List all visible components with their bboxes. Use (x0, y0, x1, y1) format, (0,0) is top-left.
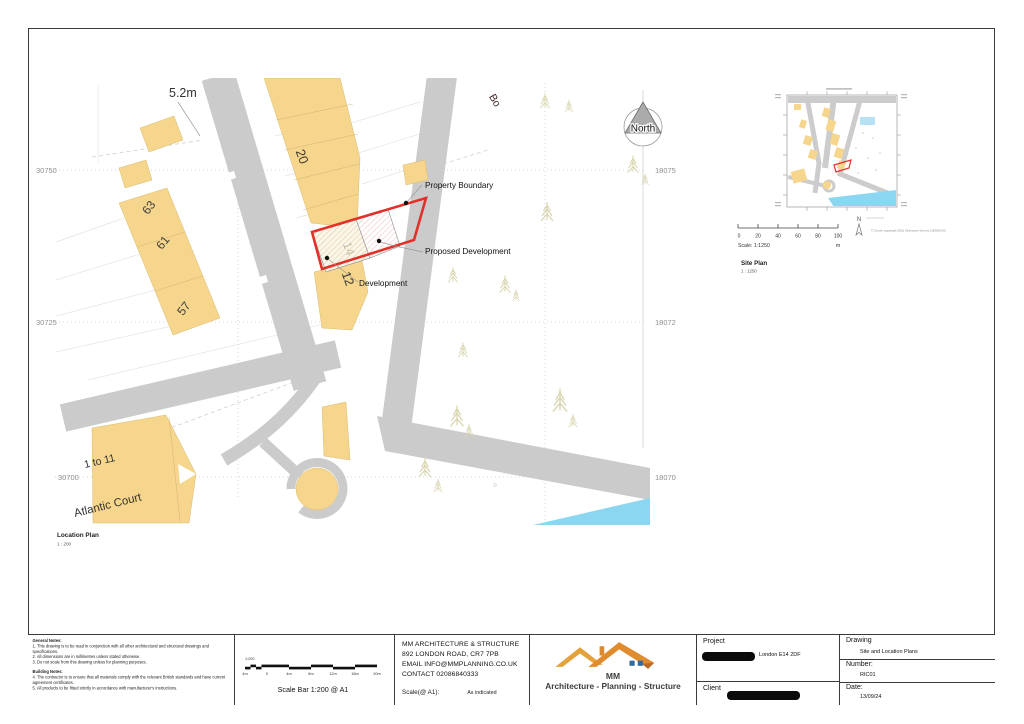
scale-bar-graphic: 1:200 4m 0 4m 8m (235, 635, 395, 706)
dimension-label: 5.2m (169, 86, 197, 100)
development-label: Development (359, 279, 408, 288)
svg-text:30700: 30700 (58, 473, 79, 482)
site-plan-scale-caption: 1 : 1250 (741, 269, 757, 274)
number-value: RIC01 (860, 672, 876, 678)
drawing-sheet: 5.2m 20 63 61 57 14 12 1 to 11 Atlantic … (0, 0, 1024, 724)
svg-text:N: N (857, 217, 861, 223)
client-name-redacted (727, 691, 800, 700)
firm-cell: MM ARCHITECTURE & STRUCTURE 892 LONDON R… (395, 635, 530, 705)
firm-email: EMAIL INFO@MMPLANNING.CO.UK (402, 660, 529, 670)
svg-text:20: 20 (755, 234, 761, 240)
svg-text:20m: 20m (373, 671, 381, 676)
svg-text:12m: 12m (329, 671, 337, 676)
scale-bar-caption: Scale Bar 1:200 @ A1 (278, 685, 349, 694)
logo-cell: MM Architecture - Planning - Structure (530, 635, 697, 705)
scale-bar-cell: 1:200 4m 0 4m 8m (235, 635, 395, 705)
building-63-61-57 (119, 188, 220, 335)
project-label: Project (703, 638, 725, 645)
site-plan-panel: 0 20 40 60 80 100 Scale: 1:1250 m N © Cr… (738, 88, 946, 274)
drawing-title-value: Site and Location Plans (860, 649, 918, 655)
roundabout-island (296, 468, 338, 510)
logo-window-icon (638, 661, 643, 666)
building-12 (314, 260, 368, 330)
svg-text:60: 60 (795, 234, 801, 240)
number-label: Number: (846, 661, 873, 668)
location-plan-caption: Location Plan (57, 532, 99, 539)
client-label: Client (703, 685, 721, 692)
proposed-development-label: Proposed Development (425, 247, 511, 256)
svg-text:16m: 16m (351, 671, 359, 676)
project-client-cell: Project London E14 2DF Client (697, 635, 840, 705)
svg-text:80: 80 (815, 234, 821, 240)
general-note-1: 1. This drawing is to be read in conjunc… (33, 644, 231, 655)
street-name-label: Bo (486, 92, 503, 109)
svg-text:0: 0 (266, 671, 269, 676)
sheet-scale-label: Scale(@ A1): (402, 689, 439, 696)
svg-text:40: 40 (775, 234, 781, 240)
svg-text:18072: 18072 (655, 318, 676, 327)
svg-text:100: 100 (834, 234, 843, 240)
sheet-scale-value: As indicated (467, 690, 496, 696)
svg-text:30725: 30725 (36, 318, 57, 327)
location-plan-scale: 1 : 200 (57, 542, 71, 547)
date-value: 13/09/24 (860, 694, 881, 700)
north-label: North (631, 124, 655, 135)
date-label: Date: (846, 684, 863, 691)
svg-text:0: 0 (738, 234, 741, 240)
title-block: General Notes: 1. This drawing is to be … (28, 634, 995, 705)
building-note-5: 5. All products to be fitted strictly in… (33, 686, 231, 691)
site-plan-scale-text: Scale: 1:1250 (738, 243, 770, 249)
road-southeast-band (377, 416, 650, 500)
firm-name: MM ARCHITECTURE & STRUCTURE (402, 640, 529, 650)
svg-text:8m: 8m (308, 671, 313, 676)
building-20 (264, 78, 360, 228)
buildings (92, 78, 428, 523)
firm-address: 892 LONDON ROAD, CR7 7PB (402, 650, 529, 660)
scale-bar-ratio: 1:200 (245, 657, 255, 661)
location-plan-map (55, 76, 650, 525)
svg-text:18075: 18075 (655, 166, 676, 175)
logo-tagline: Architecture - Planning - Structure (545, 682, 681, 692)
scale-bar-tick-labels: 4m 0 4m 8m 12m 16m 20m (242, 671, 380, 676)
notes-cell: General Notes: 1. This drawing is to be … (28, 635, 235, 705)
firm-logo-icon (551, 638, 675, 672)
drawing-info-cell: Drawing Site and Location Plans Number: … (840, 635, 995, 705)
drawing-label: Drawing (846, 637, 872, 644)
property-boundary-label: Property Boundary (425, 181, 494, 190)
project-name-redacted (702, 652, 755, 661)
logo-window-icon (629, 661, 634, 666)
os-copyright: © Crown copyright 2021 Ordnance Survey 1… (871, 229, 946, 233)
building-topleft-1 (140, 116, 183, 152)
site-plan-street-text-mark (826, 88, 852, 90)
location-plan-canvas: 5.2m 20 63 61 57 14 12 1 to 11 Atlantic … (28, 28, 995, 634)
site-plan-scalebar: 0 20 40 60 80 100 Scale: 1:1250 m (738, 224, 843, 249)
site-plan-unit: m (836, 243, 840, 249)
project-value: London E14 2DF (759, 652, 801, 658)
north-arrow: North (624, 90, 662, 448)
site-plan-caption: Site Plan (741, 260, 767, 267)
svg-text:4m: 4m (242, 671, 247, 676)
water-area (533, 498, 650, 525)
building-topleft-2 (119, 160, 152, 188)
building-note-4: 4. The contractor is to ensure that all … (33, 675, 231, 686)
svg-text:18070: 18070 (655, 473, 676, 482)
building-12-rear (322, 402, 350, 460)
svg-text:30750: 30750 (36, 166, 57, 175)
firm-contact: CONTACT 02086840333 (402, 670, 529, 680)
svg-text:4m: 4m (286, 671, 291, 676)
